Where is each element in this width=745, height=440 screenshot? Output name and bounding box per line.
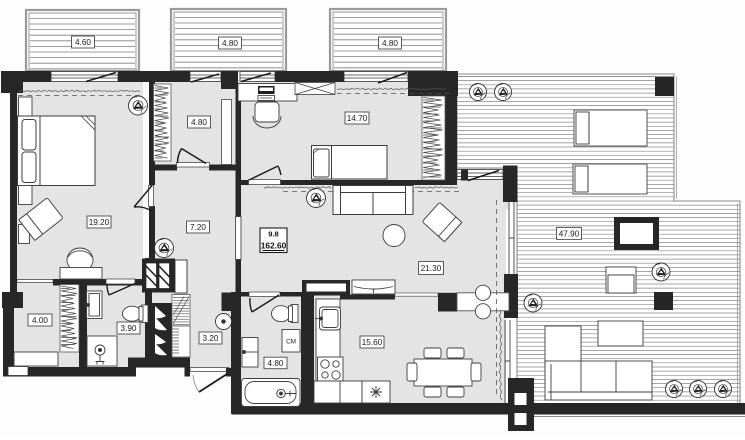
svg-text:162.60: 162.60 xyxy=(261,241,287,251)
svg-text:4.60: 4.60 xyxy=(75,38,91,47)
svg-text:3.20: 3.20 xyxy=(203,334,219,343)
svg-text:9.8: 9.8 xyxy=(268,230,279,239)
svg-text:47.90: 47.90 xyxy=(559,229,580,238)
svg-text:7.20: 7.20 xyxy=(190,223,206,232)
svg-text:СМ: СМ xyxy=(286,339,296,346)
svg-text:15.60: 15.60 xyxy=(362,338,383,347)
svg-text:4.80: 4.80 xyxy=(268,359,284,368)
svg-text:19.20: 19.20 xyxy=(89,218,110,227)
svg-text:21.30: 21.30 xyxy=(421,264,442,273)
svg-text:4.80: 4.80 xyxy=(382,39,398,48)
svg-text:4.80: 4.80 xyxy=(222,39,238,48)
svg-text:4.80: 4.80 xyxy=(191,118,207,127)
svg-text:3.90: 3.90 xyxy=(121,324,137,333)
svg-text:14.70: 14.70 xyxy=(347,114,368,123)
svg-text:4.00: 4.00 xyxy=(32,316,48,325)
